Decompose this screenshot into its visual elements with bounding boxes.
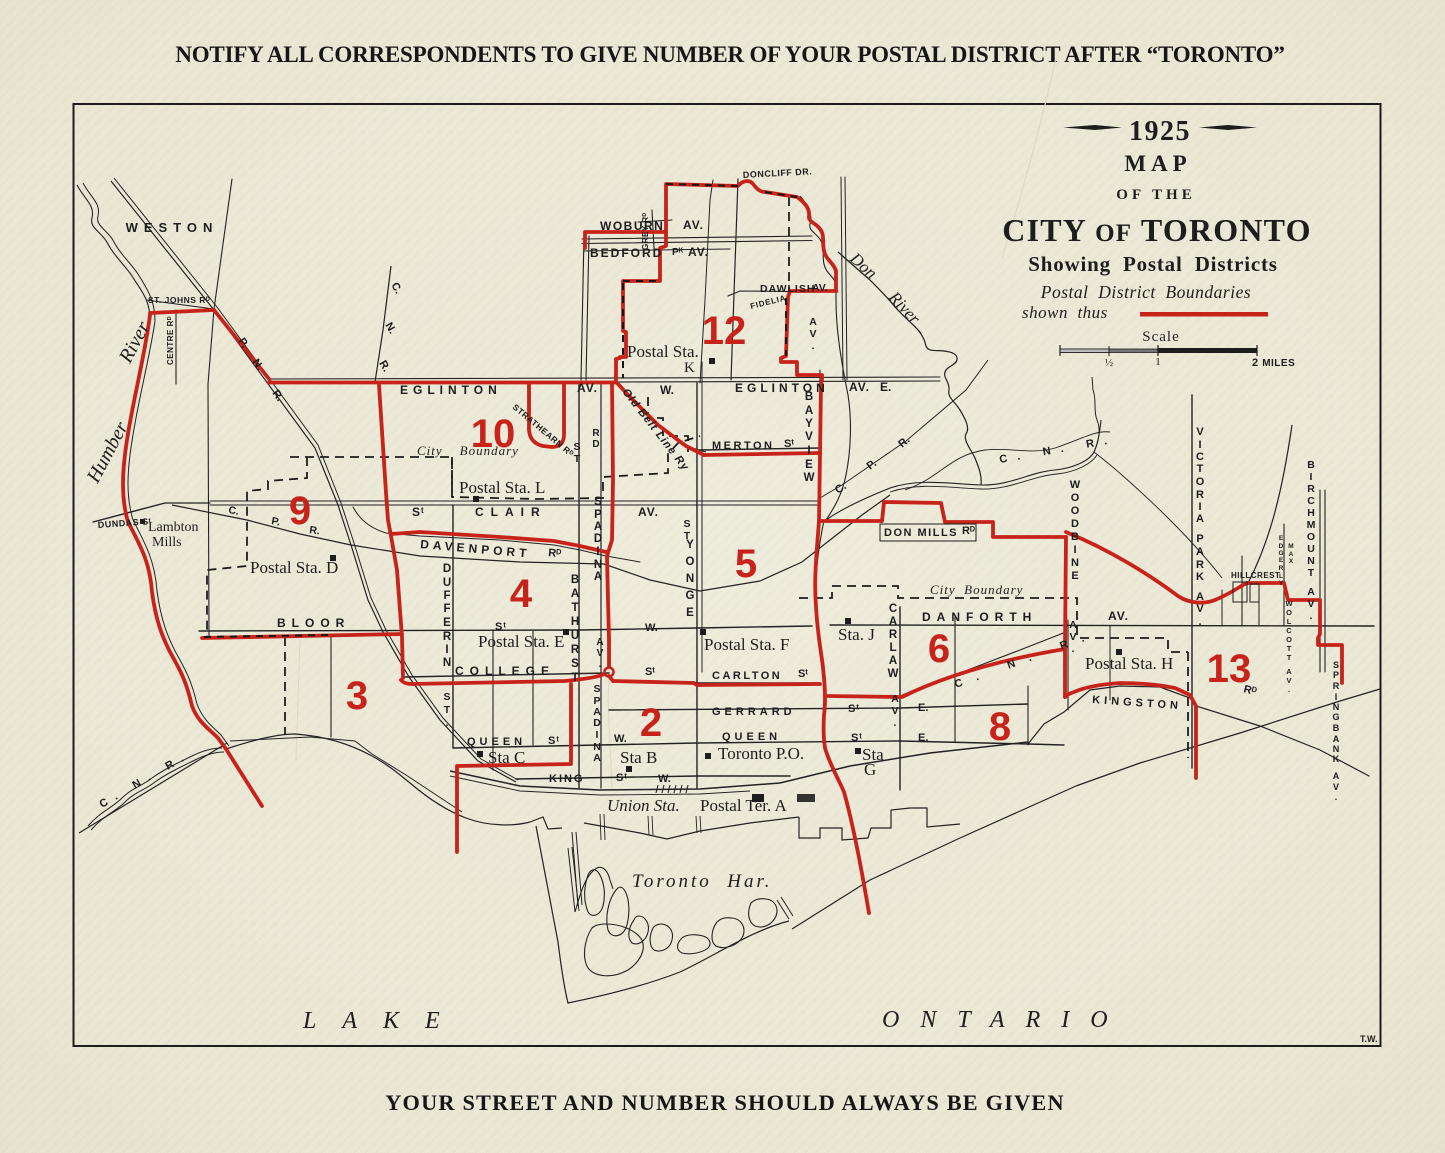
- svg-text:AV.: AV.: [688, 245, 709, 259]
- svg-text:Lambton: Lambton: [148, 520, 199, 535]
- svg-text:AV.: AV.: [1108, 609, 1129, 623]
- svg-text:NOTIFY ALL CORRESPONDENTS TO G: NOTIFY ALL CORRESPONDENTS TO GIVE NUMBER…: [175, 42, 1284, 67]
- svg-text:MAP: MAP: [1124, 151, 1191, 176]
- svg-text:C.: C.: [227, 504, 240, 518]
- svg-text:EDGERLY: EDGERLY: [1278, 535, 1283, 587]
- svg-text:2: 2: [640, 701, 662, 745]
- svg-text:4: 4: [510, 572, 533, 616]
- svg-text:Postal Sta. H: Postal Sta. H: [1085, 654, 1173, 673]
- svg-text:YOUR STREET AND NUMBER SHOULD: YOUR STREET AND NUMBER SHOULD ALWAYS BE …: [385, 1090, 1065, 1115]
- svg-text:ST: ST: [573, 441, 580, 465]
- svg-text:E.: E.: [918, 732, 928, 744]
- svg-text:T.W.: T.W.: [1360, 1034, 1378, 1044]
- svg-text:CENTRE Rᴰ: CENTRE Rᴰ: [166, 316, 175, 365]
- svg-text:Rᴰ: Rᴰ: [548, 547, 562, 560]
- svg-text:G: G: [864, 760, 876, 779]
- svg-text:MERTON: MERTON: [712, 440, 774, 452]
- svg-text:BEDFORD: BEDFORD: [590, 246, 663, 260]
- svg-text:KING: KING: [549, 773, 585, 785]
- svg-text:W.: W.: [645, 622, 658, 634]
- svg-text:GREY Rᴰ: GREY Rᴰ: [641, 212, 650, 250]
- svg-text:Postal District Boundaries: Postal District Boundaries: [1040, 282, 1251, 302]
- svg-text:Showing Postal Districts: Showing Postal Districts: [1028, 252, 1277, 276]
- svg-text:Pᴷ: Pᴷ: [672, 247, 684, 258]
- svg-text:5: 5: [735, 542, 757, 586]
- svg-text:1925: 1925: [1129, 116, 1191, 147]
- svg-text:Sta. J: Sta. J: [838, 625, 875, 644]
- svg-text:RD: RD: [592, 428, 600, 450]
- svg-text:Rᴰ: Rᴰ: [962, 525, 975, 537]
- svg-text:OF THE: OF THE: [1116, 187, 1195, 203]
- svg-text:ST. JOHNS Rᴰ: ST. JOHNS Rᴰ: [148, 295, 210, 305]
- svg-text:Sᵗ: Sᵗ: [851, 732, 863, 744]
- svg-text:DANFORTH: DANFORTH: [922, 610, 1037, 624]
- svg-text:E.: E.: [918, 702, 928, 714]
- svg-text:Postal Sta.: Postal Sta.: [627, 342, 699, 361]
- svg-text:Toronto P.O.: Toronto P.O.: [718, 744, 804, 763]
- svg-text:AV.: AV.: [812, 282, 828, 294]
- svg-text:shown thus: shown thus: [1022, 303, 1108, 322]
- svg-text:Sᵗ: Sᵗ: [798, 668, 808, 680]
- svg-text:W.: W.: [614, 733, 627, 745]
- svg-text:EGLINTON: EGLINTON: [400, 383, 502, 397]
- svg-text:AV.: AV.: [683, 218, 704, 232]
- svg-text:Sta B: Sta B: [620, 748, 657, 767]
- svg-text:ST: ST: [683, 518, 690, 542]
- svg-text:ONTARIO: ONTARIO: [882, 1007, 1129, 1033]
- svg-text:AV.: AV.: [638, 505, 659, 519]
- svg-text:QUEEN: QUEEN: [467, 736, 526, 748]
- svg-text:AV.: AV.: [577, 381, 598, 395]
- svg-text:BLOOR: BLOOR: [277, 616, 350, 630]
- svg-text:CITY OF TORONTO: CITY OF TORONTO: [1002, 212, 1311, 248]
- svg-text:Sᵗ: Sᵗ: [645, 666, 655, 678]
- svg-text:½: ½: [1105, 357, 1113, 369]
- svg-text:6: 6: [928, 627, 950, 671]
- svg-text:DAWLISH: DAWLISH: [760, 283, 815, 295]
- svg-text:EGLINTON: EGLINTON: [735, 381, 829, 395]
- svg-text:Toronto Har.: Toronto Har.: [632, 871, 773, 892]
- svg-text:SPRINGBANKAV.: SPRINGBANKAV.: [1332, 660, 1339, 802]
- svg-text:2 MILES: 2 MILES: [1252, 357, 1295, 369]
- svg-text:Scale: Scale: [1142, 329, 1179, 345]
- svg-text:R.: R.: [309, 524, 321, 537]
- svg-text:3: 3: [346, 674, 368, 718]
- svg-text:E.: E.: [880, 380, 891, 394]
- svg-text:CLAIR: CLAIR: [475, 505, 547, 519]
- svg-text:W.: W.: [660, 383, 674, 397]
- svg-text:Postal Sta. E: Postal Sta. E: [478, 632, 564, 651]
- svg-text:GERRARD: GERRARD: [712, 706, 796, 718]
- svg-text:Mills: Mills: [152, 535, 182, 550]
- svg-text:AV.: AV.: [849, 380, 870, 394]
- svg-text:Sta C: Sta C: [488, 748, 525, 767]
- svg-text:BIRCHMOUNTAV.: BIRCHMOUNTAV.: [1307, 459, 1316, 622]
- svg-text:Sᵗ: Sᵗ: [616, 772, 628, 784]
- svg-text:COLLEGE: COLLEGE: [455, 664, 555, 678]
- svg-text:LAKE: LAKE: [302, 1008, 466, 1034]
- svg-text:DON MILLS: DON MILLS: [884, 527, 958, 539]
- svg-text:SPADINA: SPADINA: [594, 496, 602, 583]
- svg-text:Postal Sta. D: Postal Sta. D: [250, 558, 338, 577]
- svg-text:Sᵗ: Sᵗ: [784, 438, 794, 450]
- svg-text:HILLCREST: HILLCREST: [1231, 571, 1280, 580]
- svg-text:Sᵗ: Sᵗ: [548, 735, 560, 747]
- svg-text:City Boundary: City Boundary: [930, 582, 1023, 597]
- svg-text:QUEEN: QUEEN: [722, 731, 781, 743]
- svg-text:WESTON: WESTON: [126, 220, 219, 235]
- svg-text:Sᵗ: Sᵗ: [412, 505, 425, 519]
- svg-text:9: 9: [289, 489, 311, 533]
- svg-text:K: K: [684, 360, 695, 376]
- svg-text:MAX: MAX: [1288, 543, 1294, 565]
- svg-text:Postal Ter. A: Postal Ter. A: [700, 796, 788, 815]
- svg-text:8: 8: [989, 705, 1011, 749]
- svg-text:W.: W.: [658, 773, 671, 785]
- svg-text:Postal Sta. F: Postal Sta. F: [704, 635, 790, 654]
- svg-text:City Boundary: City Boundary: [417, 443, 519, 458]
- svg-text:SPADINA: SPADINA: [593, 683, 601, 764]
- svg-text:Postal Sta. L: Postal Sta. L: [459, 478, 545, 497]
- svg-text:Union Sta.: Union Sta.: [607, 796, 680, 815]
- svg-text:1: 1: [1155, 356, 1161, 368]
- svg-text:12: 12: [702, 309, 747, 353]
- svg-text:CARLTON: CARLTON: [712, 670, 782, 682]
- svg-text:Sᵗ: Sᵗ: [848, 703, 860, 715]
- svg-text:WOBURN: WOBURN: [600, 219, 664, 233]
